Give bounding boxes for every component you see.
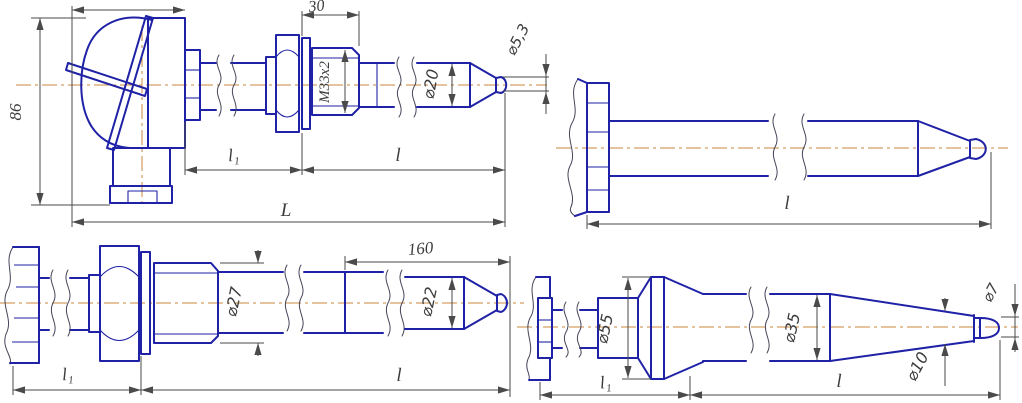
dim-cone-dia-label: ⌀10	[902, 349, 933, 384]
break-line	[749, 287, 753, 353]
flange-cut-edge	[527, 277, 536, 380]
head-cover	[81, 18, 152, 148]
dim-l-label: l	[836, 371, 841, 392]
flange-face	[538, 298, 552, 358]
break-line	[386, 270, 390, 336]
dim-body-dia-label: ⌀20	[419, 68, 443, 101]
dim-body-dia-label: ⌀35	[779, 311, 804, 344]
dim-tip-dia-label: ⌀5,3	[502, 21, 533, 58]
dim-thread-length-label: 30	[307, 0, 326, 16]
dim-total-label: L	[280, 200, 292, 221]
thread-spec-label: М33х2	[317, 61, 333, 104]
probe-tip	[970, 139, 986, 159]
dim-l1-label: l₁	[599, 371, 612, 392]
break-line	[299, 265, 303, 331]
head-body	[148, 18, 185, 148]
break-line	[765, 287, 769, 353]
break-line	[773, 114, 777, 180]
break-line	[397, 57, 401, 117]
view-tapered-probe: ⌀55 ⌀35 ⌀10 ⌀7 l₁ l	[517, 277, 1019, 400]
washer	[302, 38, 310, 129]
break-line	[802, 114, 806, 180]
cable-entry-block	[110, 186, 172, 203]
dim-thread-dia-label: ⌀27	[221, 284, 246, 318]
dim-l1-label: l₁	[227, 145, 240, 166]
break-line	[412, 57, 416, 117]
dim-tip-dia-label: ⌀7	[978, 280, 1003, 305]
dim-flange-dia-label: ⌀55	[592, 312, 617, 345]
view-flanged-probe: l	[556, 79, 1008, 229]
probe-tip	[980, 318, 999, 338]
dim-l-label: l	[395, 145, 400, 166]
view-stepped-probe: 160 ⌀27 ⌀22 l₁ l	[0, 238, 524, 397]
dim-height-label: 86	[6, 103, 25, 121]
flange-cut-edge	[5, 247, 13, 364]
dim-l1-label: l₁	[61, 364, 74, 385]
dim-l-label: l	[396, 365, 401, 386]
break-line	[564, 302, 568, 357]
dim-tip-length-label: 160	[407, 238, 435, 259]
dim-body-dia-label: ⌀22	[416, 285, 441, 318]
drawing-canvas: 86 30 М33х2 ⌀20 ⌀5,3 l₁ l L	[0, 0, 1022, 403]
break-line	[285, 265, 289, 331]
technical-drawing-sheet: 86 30 М33х2 ⌀20 ⌀5,3 l₁ l L	[0, 0, 1022, 403]
view-head-assembly: 86 30 М33х2 ⌀20 ⌀5,3 l₁ l L	[6, 0, 549, 227]
dim-l-label: l	[784, 193, 789, 214]
